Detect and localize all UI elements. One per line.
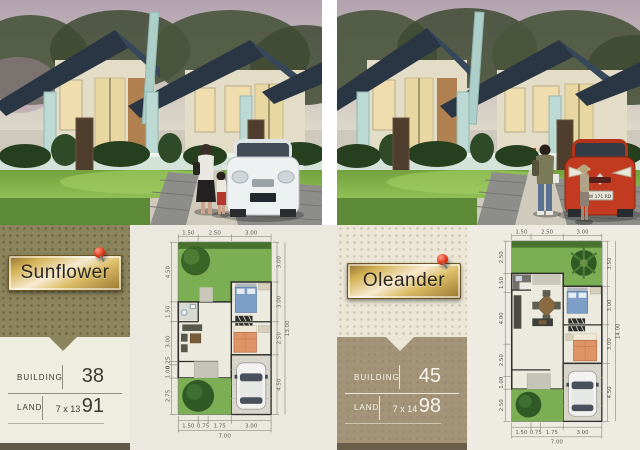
dim-label: 1.50 <box>499 276 505 289</box>
dim-label: 4.00 <box>499 312 505 325</box>
divider <box>399 365 400 389</box>
dim-total-label: 13.00 <box>285 320 291 336</box>
divider <box>62 365 63 389</box>
page-edge <box>0 443 130 450</box>
dim-label: 1.50 <box>182 230 195 236</box>
dim-label: 2.50 <box>499 399 505 412</box>
car-top-view <box>235 363 268 409</box>
divider <box>345 423 441 424</box>
dim-total-label: 14.00 <box>615 323 621 339</box>
panel-notch <box>49 337 77 351</box>
land-label: LAND <box>354 403 379 412</box>
page-edge <box>337 443 467 450</box>
dim-total-label: 7.00 <box>219 433 232 439</box>
license-plate-text: W 171 RD <box>589 194 612 200</box>
car-top-view <box>566 371 598 416</box>
sofa <box>514 295 522 328</box>
hat <box>580 165 589 174</box>
dim-label: 4.50 <box>277 378 283 391</box>
dim-label: 2.50 <box>499 354 505 367</box>
oleander-plan-svg: 1.50 2.50 3.00 1.50 0.75 1.75 3.00 7.00 … <box>495 228 625 450</box>
house-render-right: W 171 RD <box>337 0 640 225</box>
dim-label: 3.00 <box>277 295 283 308</box>
land-label: LAND <box>17 403 42 412</box>
dim-label: 1.75 <box>213 423 226 429</box>
dim-label: 3.00 <box>165 335 171 348</box>
dim-label: 4.50 <box>165 265 171 278</box>
oleander-plaque: Oleander <box>347 263 461 299</box>
red-pushpin <box>437 254 448 265</box>
dim-label: 3.00 <box>577 430 590 436</box>
red-pushpin <box>94 247 105 258</box>
dim-label: 3.00 <box>607 338 613 351</box>
dim-label: 1.00 <box>165 365 171 378</box>
dim-label: 0.75 <box>530 430 542 436</box>
entry-path <box>532 275 560 285</box>
dim-total-label: 7.00 <box>551 440 564 446</box>
dim-label: 3.00 <box>607 299 613 312</box>
oleander-floor-plan: 1.50 2.50 3.00 1.50 0.75 1.75 3.00 7.00 … <box>495 228 625 450</box>
oleander-panel: Oleander BUILDING 45 LAND 7 x 14 98 <box>337 225 467 450</box>
land-value: 91 <box>64 395 104 418</box>
dim-label: 2.50 <box>277 332 283 345</box>
divider <box>8 393 122 394</box>
dim-label: 3.50 <box>607 257 613 270</box>
oleander-name: Oleander <box>363 270 445 292</box>
dim-label: 1.50 <box>165 305 171 318</box>
divider <box>345 393 459 394</box>
building-value: 45 <box>401 365 441 388</box>
terrace <box>194 362 218 379</box>
dim-label: 1.00 <box>499 376 505 389</box>
building-label: BUILDING <box>17 373 63 382</box>
divider <box>379 396 380 420</box>
dim-label: 2.75 <box>165 389 171 402</box>
dim-label: 1.50 <box>515 430 528 436</box>
panel-notch <box>386 337 414 351</box>
tv-cabinet <box>532 318 553 326</box>
dim-label: 2.50 <box>499 251 505 264</box>
house-photo-right: W 171 RD <box>337 0 640 225</box>
dim-label: 3.00 <box>277 255 283 268</box>
dim-label: 1.50 <box>515 229 528 235</box>
dim-label: 3.00 <box>245 230 258 236</box>
dim-label: 0.75 <box>197 423 210 429</box>
dim-label: 1.75 <box>546 430 558 436</box>
divider <box>8 423 104 424</box>
dim-label: 2.50 <box>209 230 222 236</box>
house-render-left <box>0 0 322 225</box>
brochure-page: W 171 RD <box>0 0 640 450</box>
sunflower-name: Sunflower <box>21 262 110 284</box>
sunflower-floor-plan: 1.50 2.50 3.00 1.50 0.75 1.75 3.00 7.00 … <box>161 229 295 441</box>
house-photo-left <box>0 0 322 225</box>
dim-label: 2.50 <box>541 229 554 235</box>
sunflower-panel: Sunflower BUILDING 38 LAND 7 x 13 91 <box>0 225 130 450</box>
entry-path <box>200 287 213 302</box>
license-plate-left <box>250 193 276 202</box>
stone-pillar <box>76 118 93 174</box>
stone-pillar <box>393 118 409 174</box>
dim-label: 1.50 <box>182 423 195 429</box>
building-label: BUILDING <box>354 373 400 382</box>
sunflower-plan-svg: 1.50 2.50 3.00 1.50 0.75 1.75 3.00 7.00 … <box>161 229 295 441</box>
dim-label: 4.50 <box>607 386 613 399</box>
hedge <box>512 241 602 247</box>
dim-label: 3.00 <box>577 229 590 235</box>
divider <box>42 396 43 420</box>
terrace <box>527 374 550 389</box>
dim-label: 3.00 <box>245 423 258 429</box>
land-value: 98 <box>401 395 441 418</box>
building-value: 38 <box>64 365 104 388</box>
